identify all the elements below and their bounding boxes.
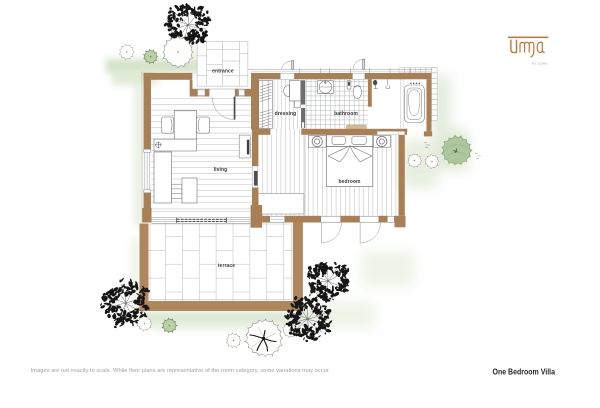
svg-text:BY COMO: BY COMO xyxy=(532,61,548,65)
svg-text:Images are not exactly to scal: Images are not exactly to scale. While f… xyxy=(31,368,329,374)
svg-text:terrace: terrace xyxy=(218,263,235,269)
svg-text:living: living xyxy=(214,167,228,173)
svg-text:dressing: dressing xyxy=(275,111,297,117)
svg-text:One Bedroom Villa: One Bedroom Villa xyxy=(493,366,556,376)
svg-text:bathroom: bathroom xyxy=(334,111,358,117)
svg-text:bedroom: bedroom xyxy=(338,179,361,185)
svg-text:entrance: entrance xyxy=(212,69,234,75)
